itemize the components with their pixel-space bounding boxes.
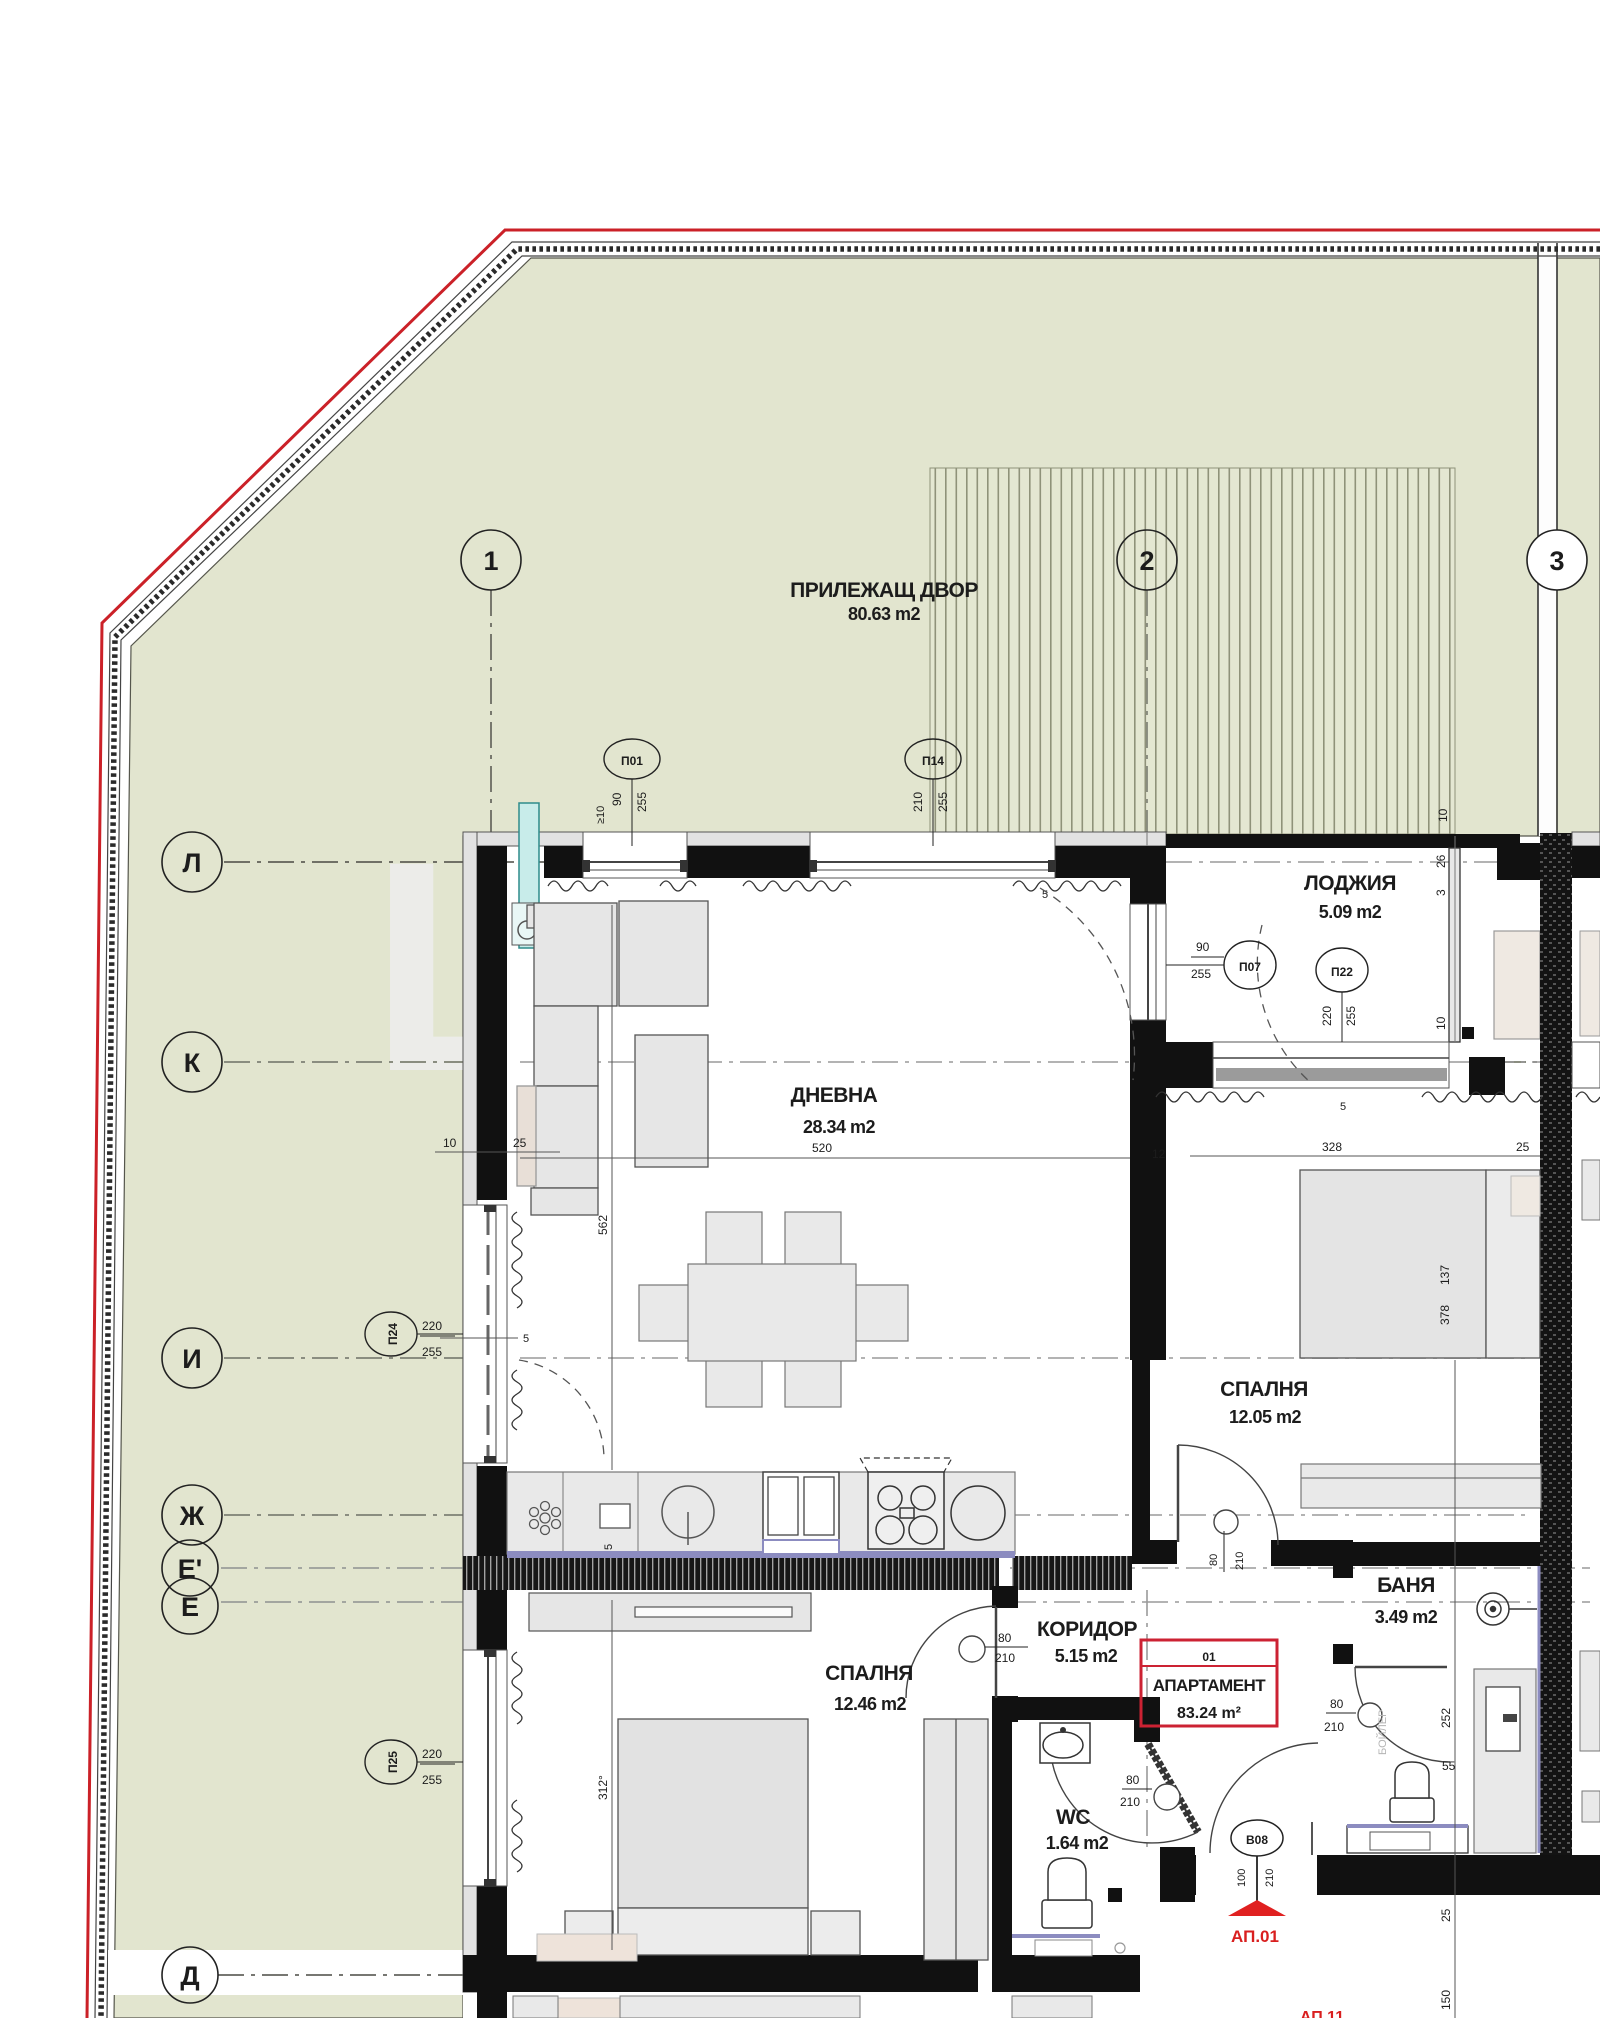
svg-text:В08: В08 bbox=[1246, 1833, 1268, 1847]
svg-text:255: 255 bbox=[936, 792, 950, 812]
svg-text:5.15 m2: 5.15 m2 bbox=[1055, 1646, 1118, 1666]
svg-text:255: 255 bbox=[635, 792, 649, 812]
svg-text:5: 5 bbox=[523, 1333, 529, 1345]
svg-text:255: 255 bbox=[1191, 967, 1211, 981]
svg-text:ПРИЛЕЖАЩ ДВОР: ПРИЛЕЖАЩ ДВОР bbox=[790, 579, 978, 602]
svg-text:КОРИДОР: КОРИДОР bbox=[1037, 1618, 1138, 1641]
svg-text:12.46 m2: 12.46 m2 bbox=[834, 1694, 907, 1714]
svg-text:80: 80 bbox=[1330, 1697, 1344, 1711]
svg-text:28.34 m2: 28.34 m2 bbox=[803, 1117, 876, 1137]
svg-text:5: 5 bbox=[603, 1544, 615, 1550]
svg-text:210: 210 bbox=[911, 792, 925, 812]
svg-text:210: 210 bbox=[1234, 1552, 1246, 1570]
svg-text:328: 328 bbox=[1322, 1140, 1342, 1154]
svg-text:1: 1 bbox=[483, 546, 498, 576]
svg-text:55: 55 bbox=[1442, 1759, 1456, 1773]
svg-text:Е: Е bbox=[181, 1592, 199, 1622]
svg-text:ДНЕВНА: ДНЕВНА bbox=[791, 1084, 878, 1107]
svg-text:80: 80 bbox=[998, 1631, 1012, 1645]
svg-text:И: И bbox=[182, 1344, 201, 1374]
svg-text:2: 2 bbox=[1139, 546, 1154, 576]
svg-text:312°: 312° bbox=[596, 1775, 610, 1800]
svg-text:220: 220 bbox=[422, 1319, 442, 1333]
svg-text:137: 137 bbox=[1438, 1265, 1452, 1285]
svg-text:П25: П25 bbox=[386, 1751, 400, 1773]
svg-text:П24: П24 bbox=[386, 1323, 400, 1345]
svg-text:378: 378 bbox=[1438, 1305, 1452, 1325]
svg-text:562: 562 bbox=[596, 1215, 610, 1235]
svg-text:80: 80 bbox=[1208, 1554, 1220, 1566]
svg-text:10: 10 bbox=[443, 1136, 457, 1150]
svg-text:255: 255 bbox=[1344, 1006, 1358, 1026]
svg-text:12.05 m2: 12.05 m2 bbox=[1229, 1407, 1302, 1427]
svg-text:220: 220 bbox=[422, 1747, 442, 1761]
svg-text:90: 90 bbox=[610, 792, 624, 806]
svg-text:АПАРТАМЕНТ: АПАРТАМЕНТ bbox=[1153, 1676, 1267, 1695]
svg-text:WC: WC bbox=[1056, 1806, 1090, 1829]
svg-text:П07: П07 bbox=[1239, 960, 1261, 974]
svg-text:ЛОДЖИЯ: ЛОДЖИЯ bbox=[1304, 872, 1396, 895]
svg-text:СПАЛНЯ: СПАЛНЯ bbox=[825, 1662, 913, 1685]
svg-text:210: 210 bbox=[1324, 1720, 1344, 1734]
svg-text:210: 210 bbox=[1120, 1795, 1140, 1809]
svg-text:БАНЯ: БАНЯ bbox=[1377, 1574, 1435, 1597]
svg-text:210: 210 bbox=[1264, 1869, 1276, 1887]
svg-text:АП.11: АП.11 bbox=[1300, 2009, 1344, 2018]
svg-text:255: 255 bbox=[422, 1773, 442, 1787]
svg-text:100: 100 bbox=[1236, 1869, 1248, 1887]
svg-text:520: 520 bbox=[812, 1141, 832, 1155]
svg-text:БОЙЛЕР: БОЙЛЕР bbox=[1376, 1710, 1389, 1755]
svg-text:Л: Л bbox=[183, 848, 202, 878]
svg-text:5: 5 bbox=[1340, 1101, 1346, 1113]
svg-text:252: 252 bbox=[1439, 1708, 1453, 1728]
svg-text:255: 255 bbox=[422, 1345, 442, 1359]
svg-text:10: 10 bbox=[1436, 808, 1450, 822]
svg-text:01: 01 bbox=[1202, 1650, 1216, 1664]
svg-text:Д: Д bbox=[180, 1961, 199, 1991]
svg-text:210: 210 bbox=[995, 1651, 1015, 1665]
svg-text:25: 25 bbox=[1516, 1140, 1530, 1154]
svg-text:3: 3 bbox=[1434, 889, 1448, 896]
svg-text:П01: П01 bbox=[621, 754, 643, 768]
svg-text:25: 25 bbox=[1439, 1908, 1453, 1922]
svg-text:П14: П14 bbox=[922, 754, 944, 768]
svg-text:80.63 m2: 80.63 m2 bbox=[848, 604, 921, 624]
svg-text:≥10: ≥10 bbox=[595, 806, 607, 824]
svg-text:83.24 m²: 83.24 m² bbox=[1177, 1705, 1241, 1722]
svg-text:220: 220 bbox=[1320, 1006, 1334, 1026]
svg-text:80: 80 bbox=[1126, 1773, 1140, 1787]
svg-text:Ж: Ж bbox=[179, 1501, 205, 1531]
svg-text:3.49 m2: 3.49 m2 bbox=[1375, 1607, 1438, 1627]
svg-text:25: 25 bbox=[513, 1136, 527, 1150]
svg-text:СПАЛНЯ: СПАЛНЯ bbox=[1220, 1378, 1308, 1401]
svg-text:1.64 m2: 1.64 m2 bbox=[1046, 1833, 1109, 1853]
svg-text:12: 12 bbox=[1152, 1147, 1166, 1161]
svg-text:5.09 m2: 5.09 m2 bbox=[1319, 902, 1382, 922]
svg-text:150: 150 bbox=[1439, 1990, 1453, 2010]
svg-text:АП.01: АП.01 bbox=[1231, 1927, 1279, 1946]
svg-text:26: 26 bbox=[1434, 854, 1448, 868]
svg-text:90: 90 bbox=[1196, 940, 1210, 954]
svg-text:3: 3 bbox=[1549, 546, 1564, 576]
svg-text:П22: П22 bbox=[1331, 965, 1353, 979]
svg-text:10: 10 bbox=[1434, 1016, 1448, 1030]
svg-text:К: К bbox=[184, 1048, 201, 1078]
